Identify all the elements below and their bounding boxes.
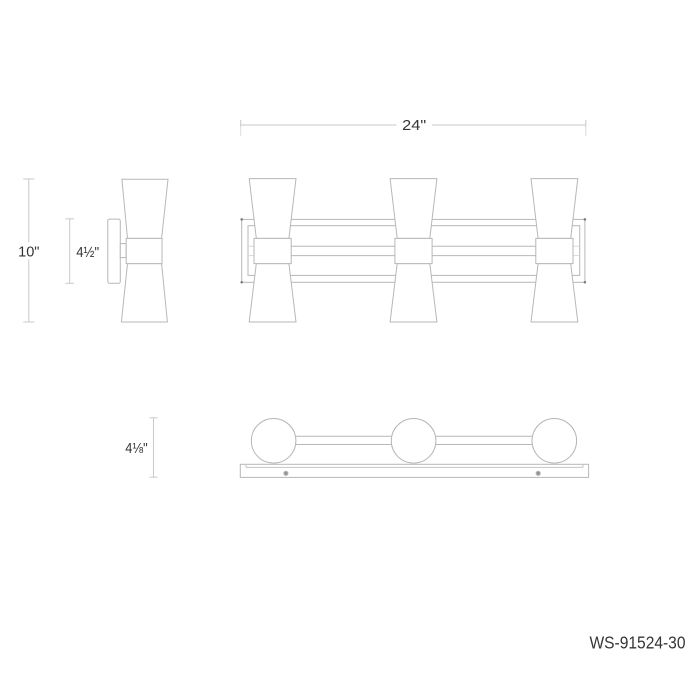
svg-text:10": 10" xyxy=(18,244,39,261)
svg-text:WS-91524-30: WS-91524-30 xyxy=(590,632,686,652)
svg-text:4½": 4½" xyxy=(76,244,99,261)
svg-text:24": 24" xyxy=(402,117,426,134)
svg-text:4⅛": 4⅛" xyxy=(125,440,147,457)
